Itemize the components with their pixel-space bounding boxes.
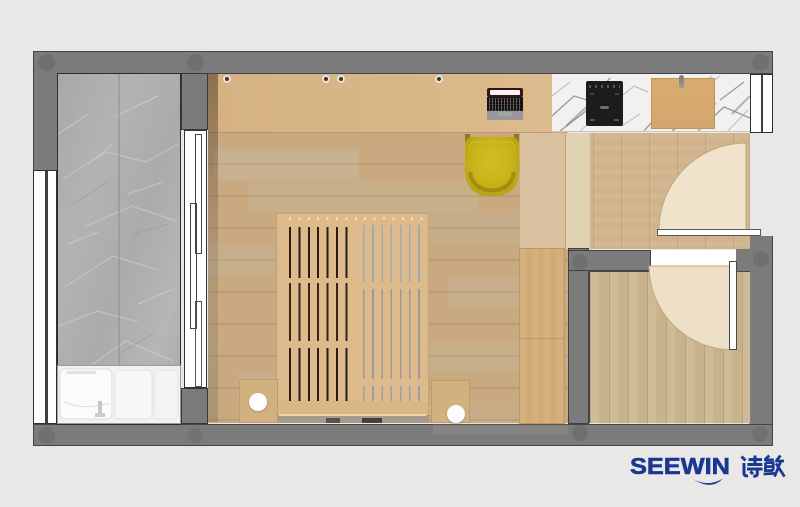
svg-text:SEEWIN: SEEWIN	[630, 453, 730, 479]
